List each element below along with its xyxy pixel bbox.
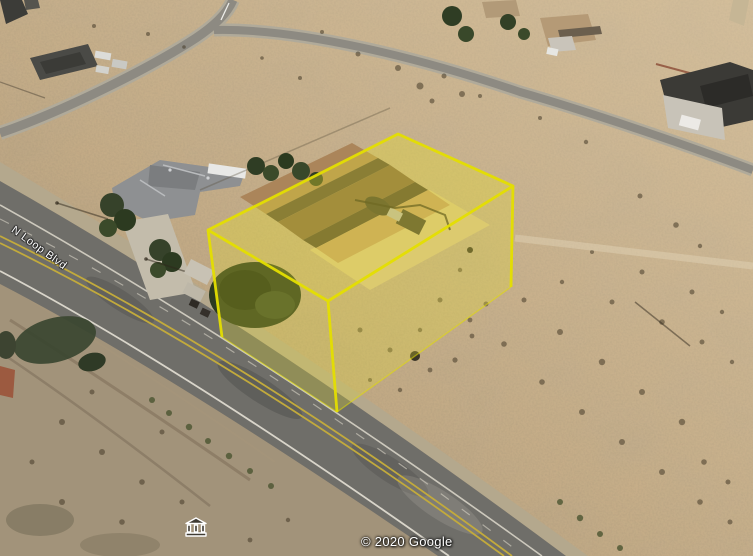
aerial-imagery [0,0,753,556]
museum-icon[interactable] [184,517,208,538]
attribution: © 2020 Google [361,534,453,549]
map-canvas[interactable]: N Loop Blvd © 2020 Google [0,0,753,556]
